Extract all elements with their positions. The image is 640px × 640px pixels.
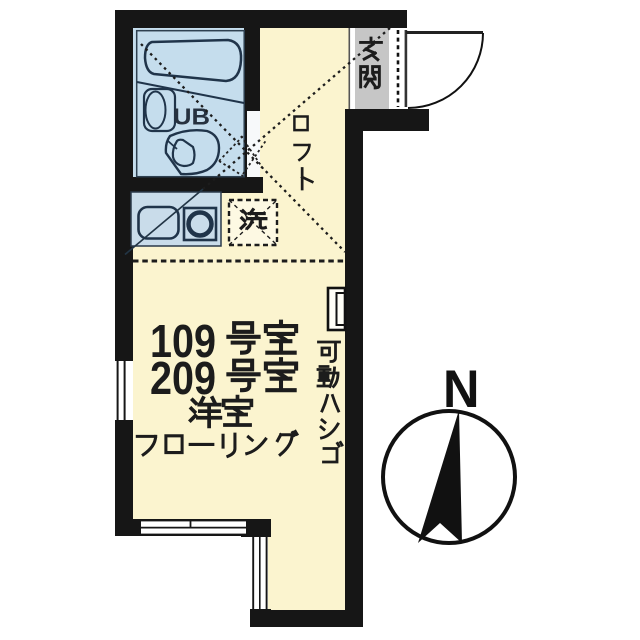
svg-text:209: 209 [150, 352, 216, 404]
svg-text:N: N [443, 360, 480, 419]
svg-text:UB: UB [173, 104, 210, 130]
